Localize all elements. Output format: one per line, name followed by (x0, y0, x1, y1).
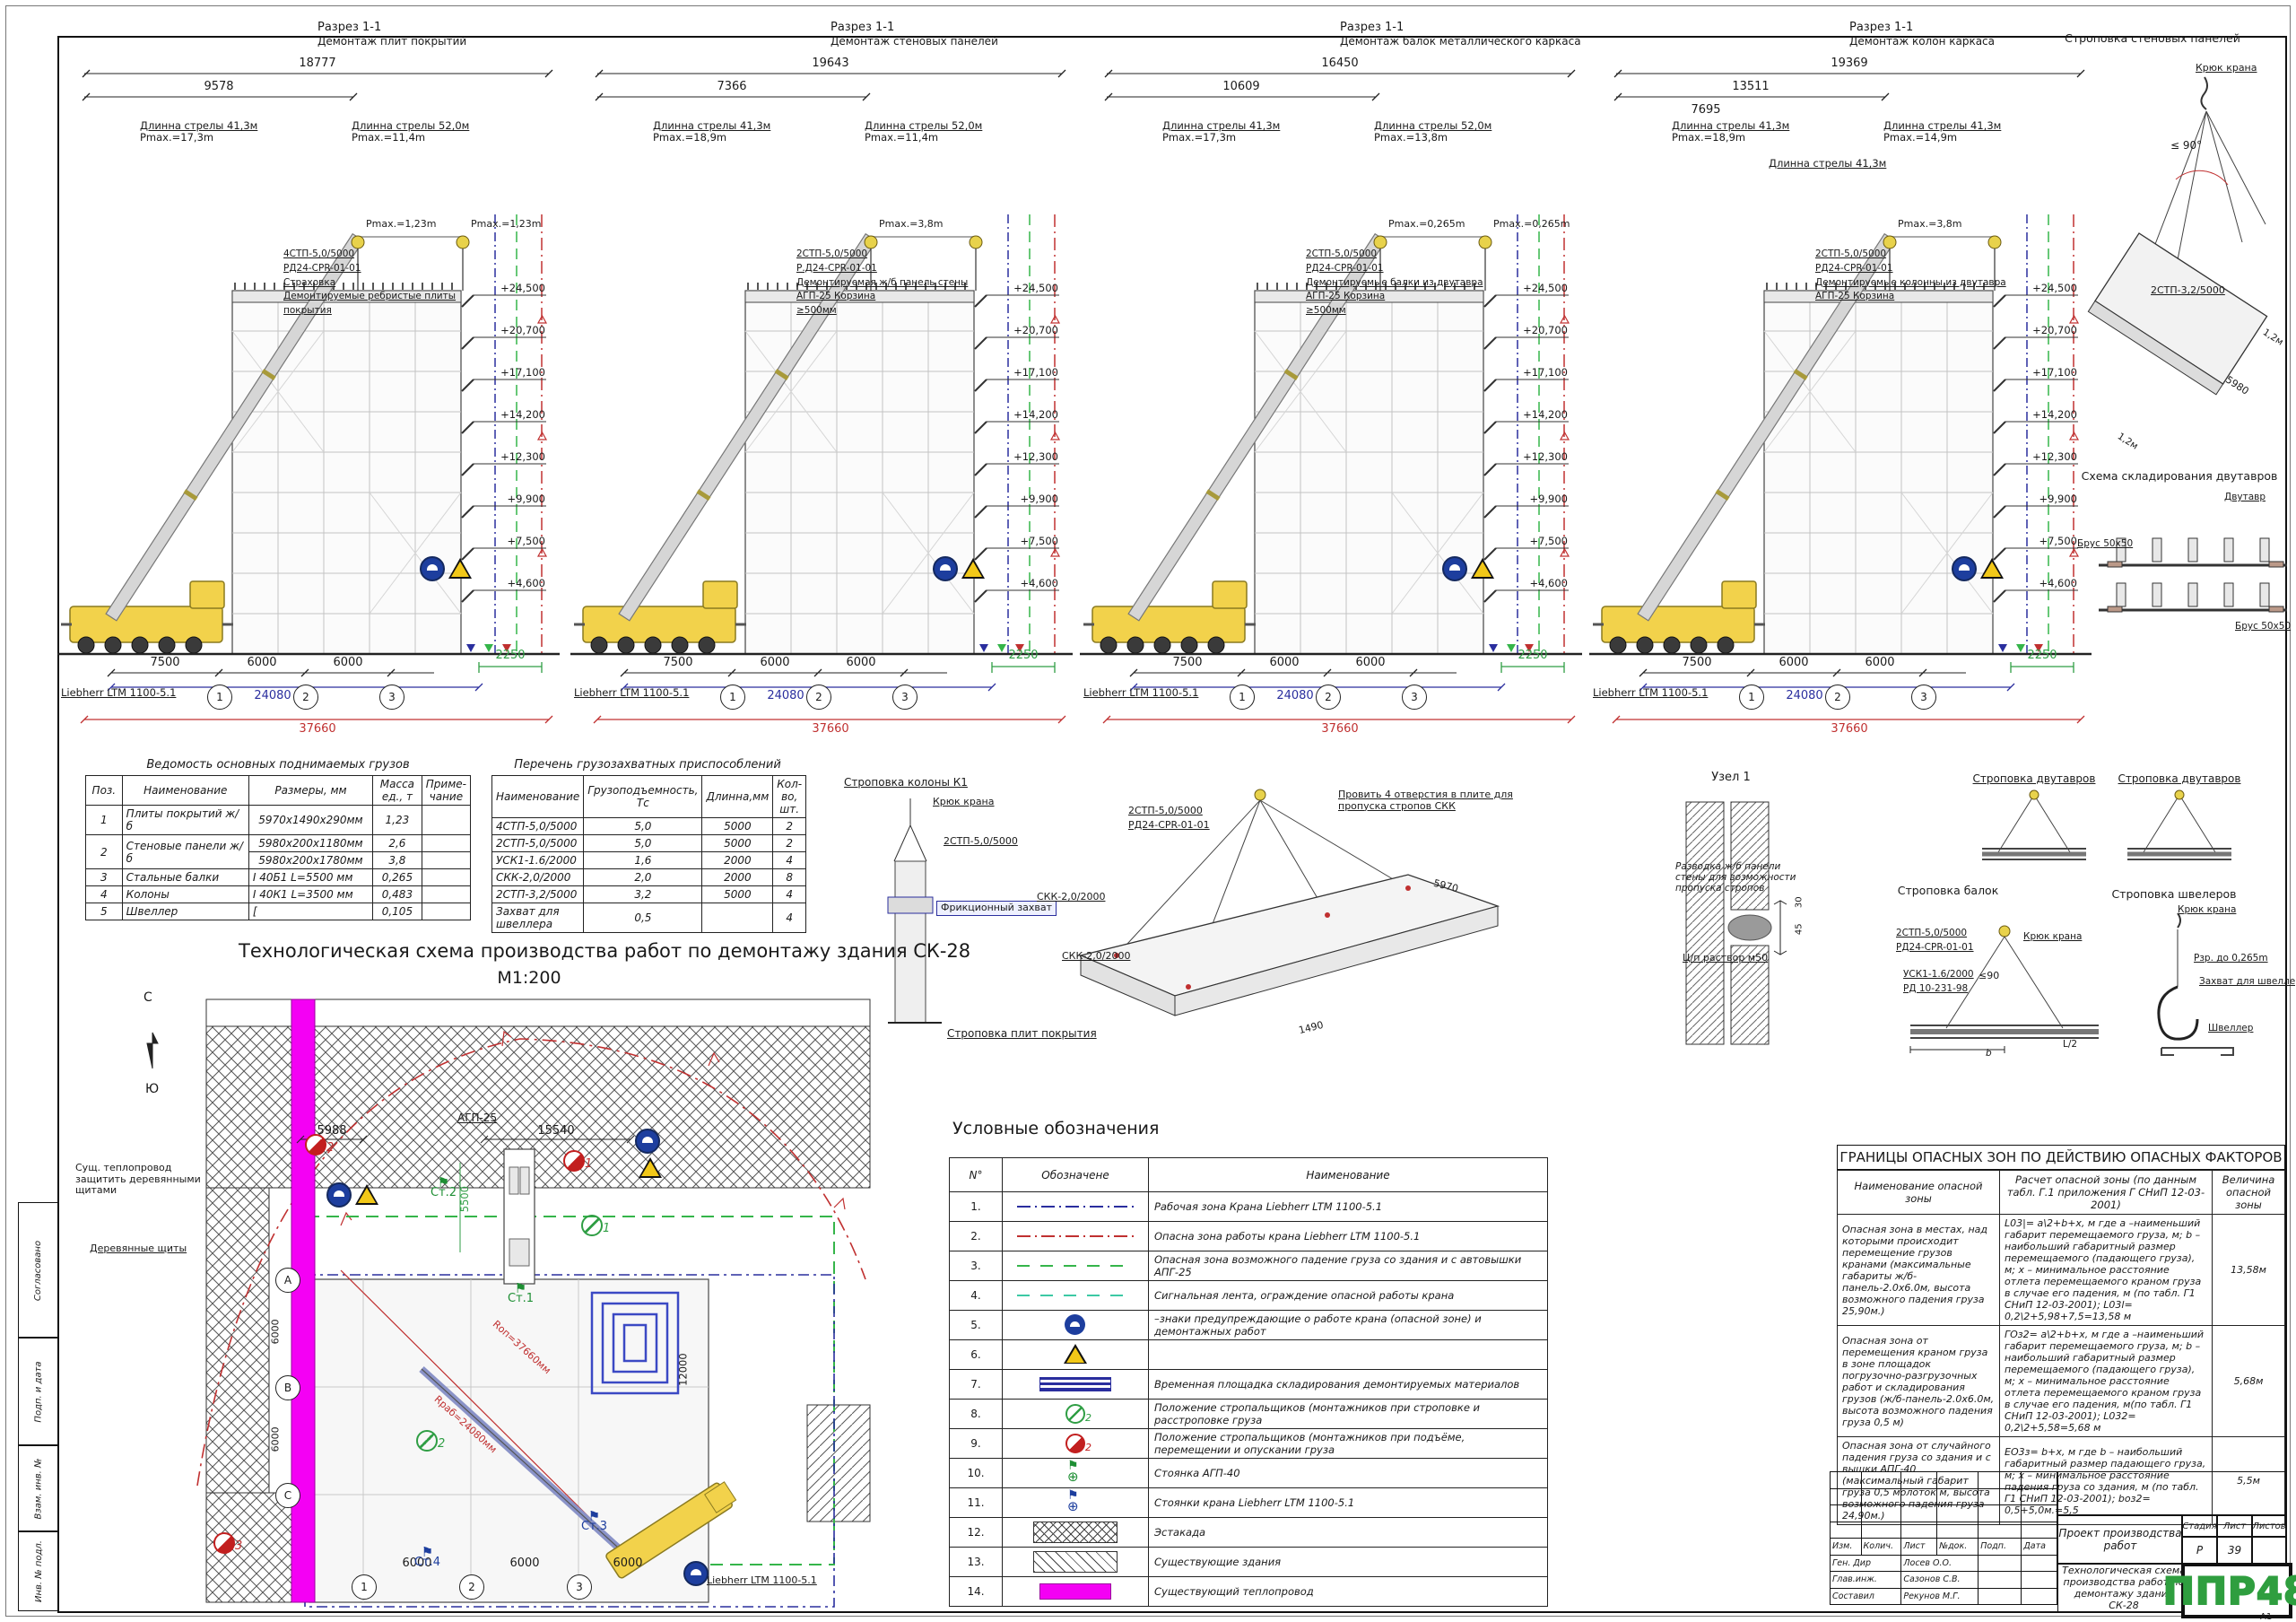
warning-sign-icon (1980, 558, 2004, 579)
legend-row: 14. Существующий теплопровод (950, 1577, 1548, 1607)
bar-label: Брус 50х50 (2077, 538, 2133, 549)
legend-row: 5. –знаки предупреждающие о работе крана… (950, 1311, 1548, 1340)
legend-symbol-icon (1017, 1225, 1134, 1247)
legend-row: 6. (950, 1340, 1548, 1370)
bar-label: Брус 50х50 (2235, 621, 2291, 632)
cell: 5980х200х1780мм (248, 852, 372, 869)
node-detail-drawing (1668, 793, 1839, 1062)
elevation-mark: +17,100 (481, 367, 545, 379)
total-dim-red: 37660 (812, 723, 848, 737)
callout-1: 4СТП-5,0/5000 (283, 248, 490, 262)
cell: Стальные балки (122, 869, 248, 886)
loads-table: Поз. Наименование Размеры, мм Масса ед.,… (85, 775, 471, 920)
elevation-mark: +24,500 (2013, 283, 2077, 294)
margin-box-inv-orig: Инв. № подл. (18, 1530, 59, 1611)
b-dim: b (1986, 1048, 1992, 1059)
legend-name: Стоянки крана Liebherr LTM 1100-5.1 (1149, 1488, 1548, 1518)
offset-dim: 2250 (1008, 650, 1038, 663)
total-dim-blue: 24080 (1786, 690, 1822, 703)
table-row: 2СТП-5,0/50005,050002 (492, 835, 806, 852)
col-header: Наименование (1149, 1158, 1548, 1192)
crane-work-sign-icon (1442, 556, 1467, 581)
cell: 2СТП-3,2/5000 (492, 886, 584, 903)
cell: 4СТП-5,0/5000 (492, 818, 584, 835)
cell: СКК-2,0/2000 (492, 869, 584, 886)
danger-table-title: ГРАНИЦЫ ОПАСНЫХ ЗОН ПО ДЕЙСТВИЮ ОПАСНЫХ … (1837, 1145, 2285, 1170)
margin-label: Взам. инв. № (34, 1458, 44, 1519)
rigger-position-number: 1 (585, 1157, 592, 1171)
boom-label-right: Длинна стрелы 52,0мPmax.=11,4m (865, 120, 982, 144)
sling-label: 2СТП-5,0/5000 (1128, 806, 1203, 817)
table-row: СКК-2,0/20002,020008 (492, 869, 806, 886)
callout-1: 2СТП-5,0/5000 (1306, 248, 1512, 262)
callout-block: 2СТП-5,0/5000 РД24-CPR-01-01 Демонтируем… (1815, 248, 2022, 304)
cell: Ⅰ 40К1 L=3500 мм (248, 886, 372, 903)
beam-sling-title: Строповка балок (1898, 885, 1999, 897)
stand-marker-st1: ⚑Ст.1 (508, 1283, 534, 1304)
legend-symbol-icon (1017, 1344, 1134, 1365)
axis-bubble-C: С (275, 1483, 300, 1508)
panel-sling-title: Строповка стеновых панелей (2065, 32, 2240, 45)
legend-symbol-icon (1017, 1551, 1134, 1573)
cell: Ⅰ 40Б1 L=5500 мм (248, 869, 372, 886)
sheet-number: 39 (2216, 1536, 2253, 1565)
cell: 2 (773, 818, 806, 835)
col-header: Колич. (1861, 1539, 1901, 1556)
boom-label-left: Длинна стрелы 41,3мPmax.=17,3m (1162, 120, 1280, 144)
dim-inner: 13511 (1732, 81, 1769, 94)
cell: 5980х200х1180мм (248, 835, 372, 852)
section-view: Разрез 1-1 Демонтаж стеновых панелей 196… (570, 22, 1073, 820)
rigger-position-number: 2 (438, 1437, 445, 1451)
cell: 0,5 (584, 903, 702, 933)
crane-model-label: Liebherr LTM 1100-5.1 (707, 1575, 817, 1587)
elevation-mark: +4,600 (2013, 578, 2077, 589)
rigger-position-green-icon (581, 1215, 603, 1236)
elevation-mark: +14,200 (2013, 409, 2077, 421)
cell: 8 (773, 869, 806, 886)
elevation-mark: +14,200 (994, 409, 1058, 421)
heat-pipe-note: Сущ. теплопровод защитить деревянными щи… (75, 1163, 201, 1197)
legend-symbol-icon (1017, 1462, 1134, 1484)
zone-value: 13,58м (2213, 1215, 2285, 1326)
boom-pmax: Pmax.=13,8m (1374, 131, 1448, 144)
legend-number: 13. (950, 1548, 1003, 1577)
boom-length: Длинна стрелы 41,3м (653, 119, 770, 132)
elevation-mark: +9,900 (1503, 493, 1568, 505)
legend-symbol-icon (1017, 1492, 1134, 1513)
stand-label: Ст.4 (414, 1556, 440, 1569)
legend-symbol-icon (1017, 1314, 1134, 1336)
legend-number: 14. (950, 1577, 1003, 1607)
legend-row: 10. Стоянка АГП-40 (950, 1459, 1548, 1488)
elevation-mark: +20,700 (994, 325, 1058, 336)
wood-shields-note: Деревянные щиты (90, 1243, 187, 1255)
elevation-mark: +9,900 (2013, 493, 2077, 505)
table-row: Захват для швеллера0,54 (492, 903, 806, 933)
rigger-position-green-icon (416, 1430, 438, 1452)
elevation-mark: +7,500 (481, 536, 545, 547)
company-logo: ППР48 (2181, 1563, 2292, 1618)
boom-length: Длинна стрелы 41,3м (1672, 119, 1789, 132)
span-dim-3: 6000 (846, 657, 875, 670)
boom-pmax: Pmax.=17,3m (140, 131, 213, 144)
crane-work-sign-icon (326, 1182, 352, 1208)
crane-work-sign-icon (683, 1561, 709, 1586)
legend-number: 7. (950, 1370, 1003, 1400)
elevation-mark: +12,300 (994, 451, 1058, 463)
legend-row: 12. Эстакада (950, 1518, 1548, 1548)
role: Составил (1831, 1588, 1901, 1605)
hook-pmax-2: Pmax.=1,23m (471, 219, 542, 231)
boom-pmax: Pmax.=11,4m (352, 131, 425, 144)
col-header: Длинна,мм (702, 776, 773, 818)
boom-label-right: Длинна стрелы 52,0мPmax.=13,8m (1374, 120, 1492, 144)
boom-label-left: Длинна стрелы 41,3мPmax.=18,9m (1672, 120, 1789, 144)
legend-number: 2. (950, 1222, 1003, 1251)
total-dim-red: 37660 (1831, 723, 1867, 737)
cell: 5,0 (584, 835, 702, 852)
panel-sling-drawing (2090, 72, 2296, 449)
boom-pmax: Pmax.=14,9m (1883, 131, 1957, 144)
plan-title: Технологическая схема производства работ… (239, 940, 970, 962)
hook-pmax-2: Pmax.=0,265m (1493, 219, 1570, 231)
callout-block: 2СТП-5,0/5000 РД24-CPR-01-01 Демонтируем… (1306, 248, 1512, 318)
cell: 0,265 (373, 869, 422, 886)
role: Глав.инж. (1831, 1572, 1901, 1589)
axis-bubble-2: 2 (806, 685, 831, 710)
crane-work-sign-icon (933, 556, 958, 581)
callout-5: ≥500мм (1306, 304, 1512, 318)
boom-label-right: Длинна стрелы 52,0мPmax.=11,4m (352, 120, 469, 144)
legend-number: 10. (950, 1459, 1003, 1488)
crane-model-label: Liebherr LTM 1100-5.1 (574, 687, 689, 699)
plan-dim-bottom: 6000 (613, 1557, 642, 1571)
cell: 3,8 (373, 852, 422, 869)
beam-label: Двутавр (2224, 492, 2266, 502)
offset-dim: 2250 (2027, 650, 2057, 663)
boom-pmax: Pmax.=11,4m (865, 131, 938, 144)
twin-beam-drawings (1964, 789, 2260, 888)
plan-drawing (206, 983, 870, 1611)
cell: 5,0 (584, 818, 702, 835)
node-title: Узел 1 (1711, 772, 1751, 785)
elevation-mark: +4,600 (481, 578, 545, 589)
elevation-mark: +7,500 (1503, 536, 1568, 547)
legend-row: 8. Положение стропальщиков (монтажников … (950, 1400, 1548, 1429)
legend-name: Опасная зона возможного падение груза со… (1149, 1251, 1548, 1281)
axis-bubble-2: 2 (293, 685, 318, 710)
hook-pmax-1: Pmax.=0,265m (1388, 219, 1465, 231)
total-dim-blue: 24080 (767, 690, 804, 703)
elevation-mark: +20,700 (1503, 325, 1568, 336)
agp-label: АГП-25 (457, 1112, 497, 1125)
axis-bubble-1: 1 (1739, 685, 1764, 710)
dim-inner: 7366 (717, 81, 746, 94)
legend-symbol-icon (1017, 1581, 1134, 1602)
span-dim-1: 7500 (1172, 657, 1202, 670)
legend-symbol-icon (1017, 1403, 1134, 1425)
col-header: Изм. (1831, 1539, 1862, 1556)
callout-2: РД24-CPR-01-01 (1815, 262, 2022, 276)
legend-name: –знаки предупреждающие о работе крана (о… (1149, 1311, 1548, 1340)
elevation-mark: +12,300 (2013, 451, 2077, 463)
elevation-mark: +17,100 (994, 367, 1058, 379)
cell: 0,105 (373, 903, 422, 920)
boom-length: Длинна стрелы 52,0м (1374, 119, 1492, 132)
total-dim-red: 37660 (1321, 723, 1358, 737)
legend-row: 2. Опасна зона работы крана Liebherr LTM… (950, 1222, 1548, 1251)
hook-pmax-1: Pmax.=1,23m (366, 219, 437, 231)
cell: 2 (86, 835, 123, 869)
axis-bubble-A: А (275, 1268, 300, 1293)
legend-number: 6. (950, 1340, 1003, 1370)
axis-bubble-1: 1 (352, 1574, 377, 1600)
cell: 5000 (702, 835, 773, 852)
elevation-mark: +4,600 (994, 578, 1058, 589)
elevation-mark: +17,100 (1503, 367, 1568, 379)
legend-row: 13. Существующие здания (950, 1548, 1548, 1577)
col-header: Наименование опасной зоны (1838, 1171, 2000, 1215)
legend-row: 9. Положение стропальщиков (монтажников … (950, 1429, 1548, 1459)
total-dim-red: 37660 (299, 723, 335, 737)
half-length-dim: L/2 (2063, 1039, 2077, 1050)
warning-sign-icon (639, 1157, 662, 1178)
twin-beam-title-2: Строповка двутавров (2118, 773, 2241, 786)
zone-value: 5,68м (2213, 1326, 2285, 1437)
rigger-position-number: 2 (326, 1141, 334, 1155)
slab-note: Провить 4 отверстия в плите для пропуска… (1338, 789, 1531, 812)
callout-3: Демонтируемые балки из двутавра (1306, 276, 1512, 291)
stand-marker-st3: ⚑Ст.3 (581, 1511, 607, 1532)
col-header: №док. (1937, 1539, 1979, 1556)
legend-row: 7. Временная площадка складирования демо… (950, 1370, 1548, 1400)
twin-beam-title-1: Строповка двутавров (1973, 773, 2096, 786)
stage-header: Стадия (2181, 1514, 2218, 1538)
boom-pmax: Pmax.=18,9m (1672, 131, 1745, 144)
danger-zone-row: Опасная зона в местах, над которыми прои… (1838, 1215, 2285, 1326)
panel-angle: ≤ 90° (2170, 140, 2202, 153)
axis-bubble-1: 1 (1230, 685, 1255, 710)
cell: 4 (773, 852, 806, 869)
legend-name: Эстакада (1149, 1518, 1548, 1548)
dim-total: 18777 (299, 57, 335, 71)
offset-dim: 2250 (495, 650, 525, 663)
project-name: Проект производства работ (2057, 1514, 2183, 1565)
boom-pmax: Pmax.=18,9m (653, 131, 726, 144)
cell: 2,6 (373, 835, 422, 852)
legend-name: Сигнальная лента, ограждение опасной раб… (1149, 1281, 1548, 1311)
sections-row: Разрез 1-1 Демонтаж плит покрытий 18777 … (0, 0, 2296, 825)
axis-bubble-3: 3 (567, 1574, 592, 1600)
axis-bubble-3: 3 (892, 685, 918, 710)
elevation-mark: +12,300 (481, 451, 545, 463)
legend-table: N° Обозначене Наименование 1. Рабочая зо… (949, 1157, 1548, 1607)
col-header: Лист (1901, 1539, 1937, 1556)
margin-label: Согласовано (34, 1240, 44, 1300)
callout-3: Демонтируемые колонны из двутавра (1815, 276, 2022, 291)
node-note: Разводка ж/б панели стены для возможност… (1675, 861, 1810, 894)
cell: УСК1-1.6/2000 (492, 852, 584, 869)
stand-label: Ст.2 (430, 1186, 457, 1199)
sheets-total (2251, 1536, 2287, 1565)
cell: Захват для швеллера (492, 903, 584, 933)
danger-zones-table: ГРАНИЦЫ ОПАСНЫХ ЗОН ПО ДЕЙСТВИЮ ОПАСНЫХ … (1837, 1145, 2285, 1525)
elevation-mark: +7,500 (994, 536, 1058, 547)
axis-bubble-2: 2 (1316, 685, 1341, 710)
skk-label: СКК-2,0/2000 (1062, 951, 1130, 963)
elevation-mark: +14,200 (1503, 409, 1568, 421)
cell: 3 (86, 869, 123, 886)
legend-name: Рабочая зона Крана Liebherr LTM 1100-5.1 (1149, 1192, 1548, 1222)
dim-total: 19369 (1831, 57, 1867, 71)
axis-bubble-1: 1 (720, 685, 745, 710)
legend-number: 3. (950, 1251, 1003, 1281)
legend-title: Условные обозначения (952, 1120, 1159, 1139)
cell: 5970х1490х290мм (248, 806, 372, 835)
callout-4: АГП-25 Корзина (1815, 290, 1995, 304)
compass-south-label: Ю (145, 1082, 159, 1096)
boom-length: Длинна стрелы 52,0м (352, 119, 469, 132)
boom-length: Длинна стрелы 52,0м (865, 119, 982, 132)
legend-number: 5. (950, 1311, 1003, 1340)
drawing-sheet: Разрез 1-1 Демонтаж плит покрытий 18777 … (0, 0, 2296, 1622)
col-header: Наименование (122, 776, 248, 806)
skk-label: СКК-2,0/2000 (1037, 892, 1105, 903)
callout-1: 2СТП-5,0/5000 (1815, 248, 2022, 262)
boom-label-mid: Длинна стрелы 41,3м (1769, 158, 1886, 170)
rigging-table-title: Перечень грузозахватных приспособлений (514, 759, 781, 772)
rigger-position-red-icon (213, 1532, 235, 1554)
cell: 1,23 (373, 806, 422, 835)
revision-table: Изм.Колич.Лист№док.Подп.Дата Ген. ДирЛос… (1830, 1471, 2057, 1605)
callout-1: 2СТП-5,0/5000 (796, 248, 1003, 262)
legend-number: 8. (950, 1400, 1003, 1429)
col-header: Дата (2022, 1539, 2057, 1556)
cell: 4 (773, 886, 806, 903)
boom-length: Длинна стрелы 41,3м (1769, 157, 1886, 170)
table-row: 4СТП-5,0/50005,050002 (492, 818, 806, 835)
crane-work-sign-icon (635, 1129, 660, 1154)
channel-sling-title: Строповка швелеров (2111, 888, 2236, 901)
section-view: Разрез 1-1 Демонтаж балок металлического… (1080, 22, 1582, 820)
elevation-mark: +4,600 (1503, 578, 1568, 589)
cell: Колоны (122, 886, 248, 903)
col-header: Кол-во, шт. (773, 776, 806, 818)
legend-row: 1. Рабочая зона Крана Liebherr LTM 1100-… (950, 1192, 1548, 1222)
boom-pmax: Pmax.=17,3m (1162, 131, 1236, 144)
channel-sling-drawing (2135, 906, 2287, 1068)
hook-pmax-1: Pmax.=3,8m (1898, 219, 1962, 231)
margin-label: Подп. и дата (34, 1361, 44, 1422)
elevation-mark: +17,100 (2013, 367, 2077, 379)
callout-4: АГП-25 Корзина (796, 290, 976, 304)
boom-length: Длинна стрелы 41,3м (1162, 119, 1280, 132)
span-dim-2: 6000 (1269, 657, 1299, 670)
span-dim-1: 7500 (1682, 657, 1711, 670)
table-row: УСК1-1.6/20001,620004 (492, 852, 806, 869)
stand-label: Ст.1 (508, 1292, 534, 1305)
person-name: Лосев О.О. (1901, 1555, 1979, 1572)
legend-name: Существующий теплопровод (1149, 1577, 1548, 1607)
cell: Стеновые панели ж/б (122, 835, 248, 869)
col-header: Размеры, мм (248, 776, 372, 806)
warning-sign-icon (961, 558, 985, 579)
rigger-position-number: 3 (235, 1539, 242, 1553)
elevation-mark: +20,700 (481, 325, 545, 336)
elevation-mark: +24,500 (481, 283, 545, 294)
cell: 1,6 (584, 852, 702, 869)
boom-label-left: Длинна стрелы 41,3мPmax.=18,9m (653, 120, 770, 144)
margin-label: Инв. № подл. (34, 1540, 44, 1602)
legend-name (1149, 1340, 1548, 1370)
crane-model-label: Liebherr LTM 1100-5.1 (1593, 687, 1708, 699)
callout-block: 4СТП-5,0/5000 РД24-CPR-01-01 Страховка Д… (283, 248, 490, 318)
boom-length: Длинна стрелы 41,3м (140, 119, 257, 132)
span-dim-3: 6000 (1355, 657, 1385, 670)
boom-length: Длинна стрелы 41,3м (1883, 119, 2001, 132)
compass-north-label: С (143, 990, 152, 1005)
span-dim-2: 6000 (760, 657, 789, 670)
slab-detail-drawing (1031, 780, 1534, 1041)
cell: 2000 (702, 869, 773, 886)
stack-title: Схема складирования двутавров (2082, 470, 2278, 483)
plan-dim-bottom: 6000 (509, 1557, 539, 1571)
callout-4: Демонтируемые ребристые плиты покрытия (283, 290, 463, 318)
callout-3: Страховка (283, 276, 490, 291)
person-name: Рекунов М.Г. (1901, 1588, 1979, 1605)
legend-row: 4. Сигнальная лента, ограждение опасной … (950, 1281, 1548, 1311)
legend-name: Положение стропальщиков (монтажников при… (1149, 1400, 1548, 1429)
legend-number: 11. (950, 1488, 1003, 1518)
offset-dim: 2250 (1518, 650, 1547, 663)
callout-2: Р.Д24-CPR-01-01 (796, 262, 1003, 276)
dim-inner: 10609 (1222, 81, 1259, 94)
col-header: Грузоподъемность, Тс (584, 776, 702, 818)
section-view: Разрез 1-1 Демонтаж колон каркаса 19369 … (1589, 22, 2092, 820)
span-dim-1: 7500 (663, 657, 692, 670)
beam-sling-drawing (1883, 915, 2117, 1068)
cell (702, 903, 773, 933)
warning-sign-icon (448, 558, 472, 579)
legend-row: 11. Стоянки крана Liebherr LTM 1100-5.1 (950, 1488, 1548, 1518)
callout-4: АГП-25 Корзина (1306, 290, 1485, 304)
cell: [ (248, 903, 372, 920)
col-header: Величина опасной зоны (2213, 1171, 2285, 1215)
legend-number: 12. (950, 1518, 1003, 1548)
legend-symbol-icon (1017, 1433, 1134, 1454)
legend-symbol-icon (1017, 1255, 1134, 1277)
dim-inner: 9578 (204, 81, 233, 94)
cell: 5 (86, 903, 123, 920)
hook-pmax-1: Pmax.=3,8m (879, 219, 944, 231)
legend-row: 3. Опасная зона возможного падение груза… (950, 1251, 1548, 1281)
elevation-mark: +9,900 (481, 493, 545, 505)
rigger-position-red-icon (563, 1150, 585, 1172)
elevation-mark: +9,900 (994, 493, 1058, 505)
legend-name: Существующие здания (1149, 1548, 1548, 1577)
axis-bubble-3: 3 (1911, 685, 1936, 710)
legend-name: Положение стропальщиков (монтажников при… (1149, 1429, 1548, 1459)
cell: 5000 (702, 886, 773, 903)
cell: 4 (86, 886, 123, 903)
section-view: Разрез 1-1 Демонтаж плит покрытий 18777 … (57, 22, 560, 820)
col-header: N° (950, 1158, 1003, 1192)
axis-bubble-B: В (275, 1375, 300, 1400)
span-dim-3: 6000 (333, 657, 362, 670)
stand-label: Ст.3 (581, 1520, 607, 1533)
col-header: Расчет опасной зоны (по данным табл. Г.1… (2000, 1171, 2213, 1215)
